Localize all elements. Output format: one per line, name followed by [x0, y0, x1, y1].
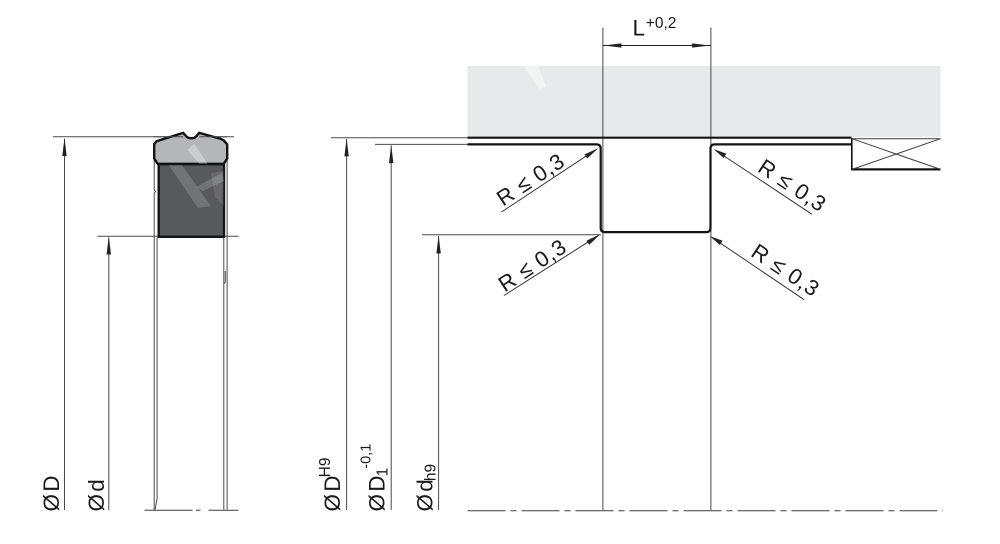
svg-text:Ød: Ød: [84, 477, 109, 511]
svg-text:+0,2: +0,2: [646, 15, 677, 32]
svg-text:ØD: ØD: [39, 473, 64, 511]
svg-text:L: L: [633, 16, 646, 41]
